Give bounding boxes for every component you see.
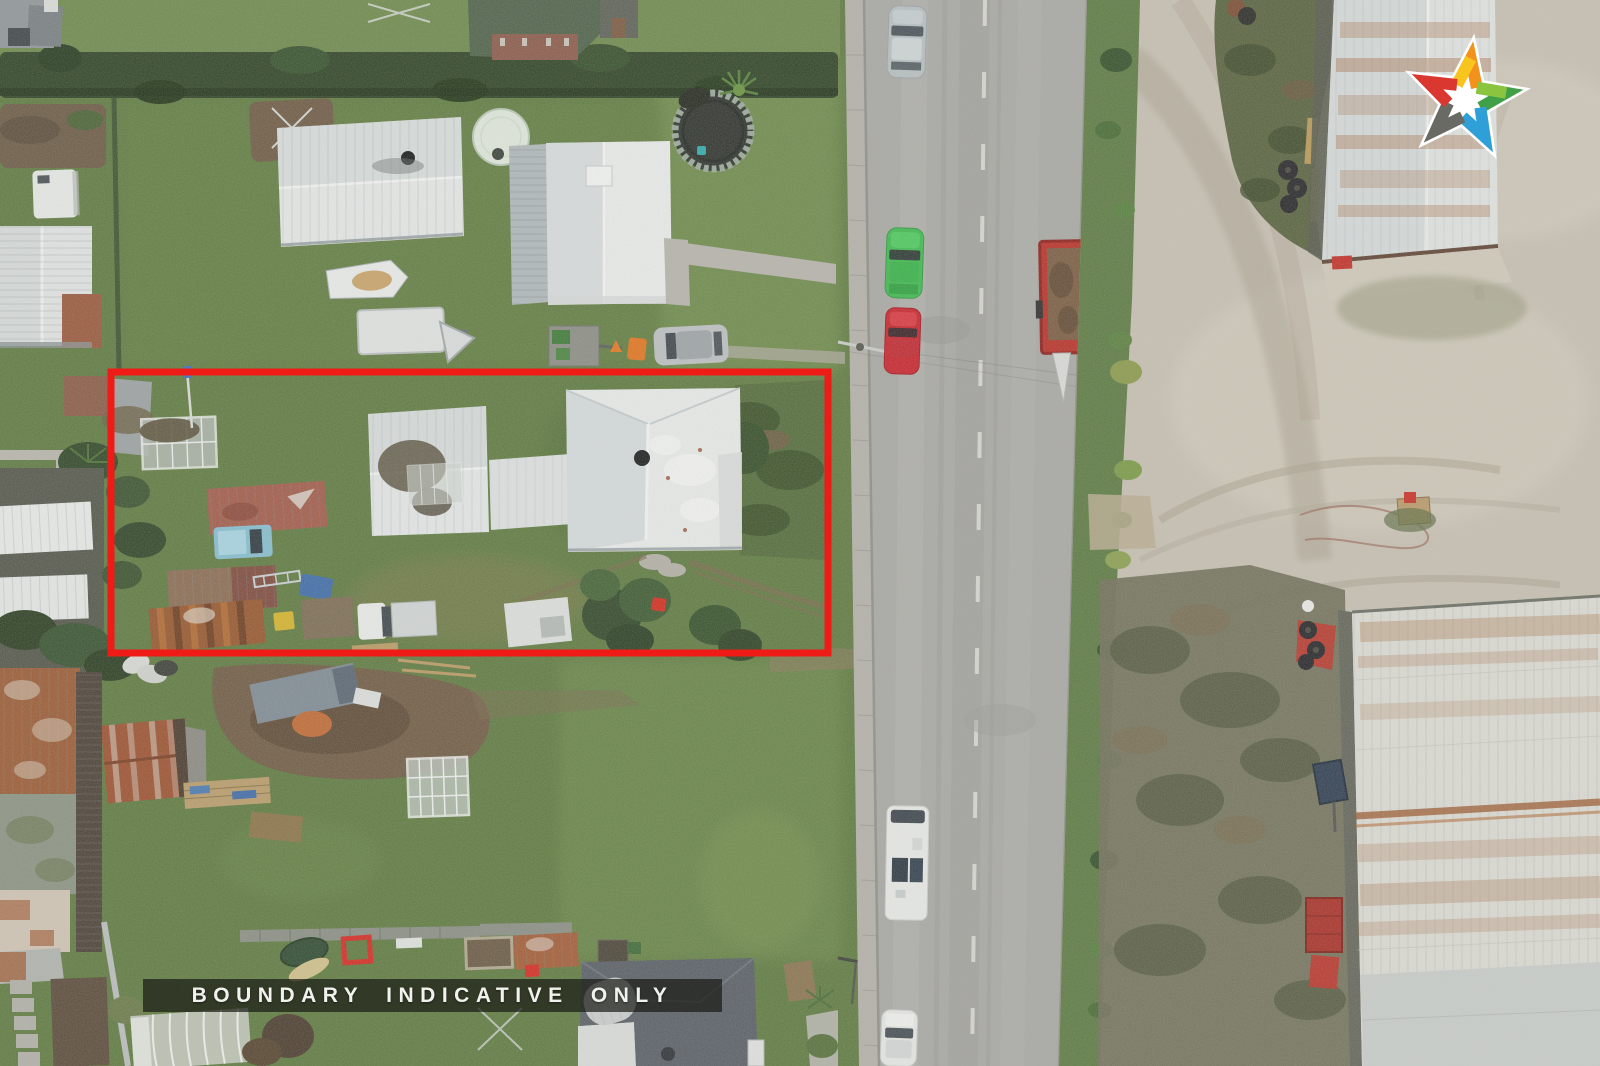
boundary-disclaimer-bar: BOUNDARY INDICATIVE ONLY bbox=[143, 979, 722, 1012]
boundary-disclaimer-text: BOUNDARY INDICATIVE ONLY bbox=[192, 984, 674, 1008]
aerial-photo-figure: BOUNDARY INDICATIVE ONLY bbox=[0, 0, 1600, 1066]
star-chevron-green-tip bbox=[1477, 88, 1506, 93]
photo-grain bbox=[0, 0, 1600, 1066]
aerial-photo bbox=[0, 0, 1600, 1066]
